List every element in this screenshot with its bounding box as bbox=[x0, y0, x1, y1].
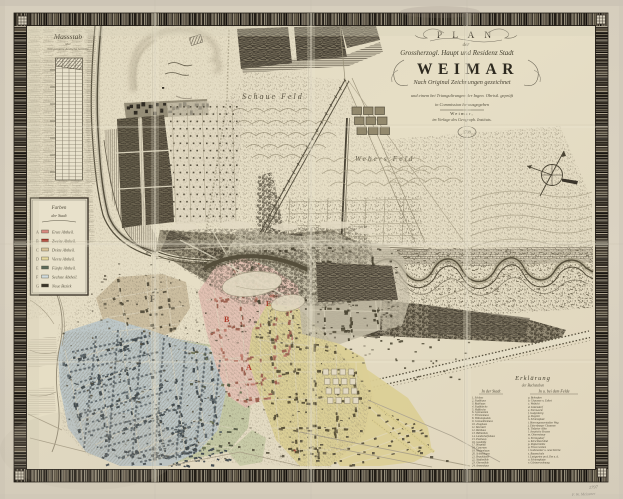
svg-text:Sechste Abtheil.: Sechste Abtheil. bbox=[52, 274, 77, 279]
svg-text:der Buchstaben: der Buchstaben bbox=[522, 384, 545, 388]
svg-text:Fünfte Abtheil.: Fünfte Abtheil. bbox=[51, 265, 76, 270]
svg-text:im Verlage des Geograph. Insti: im Verlage des Geograph. Instituts. bbox=[432, 117, 491, 122]
svg-text:und einem bei Triangulirungen: und einem bei Triangulirungen der Ingen.… bbox=[411, 93, 514, 98]
svg-text:24. Armenhaus: 24. Armenhaus bbox=[472, 464, 489, 467]
svg-text:in Commission herausgegeben: in Commission herausgegeben bbox=[435, 102, 490, 107]
svg-text:1797: 1797 bbox=[589, 484, 599, 490]
svg-text:v. Gärtnerwohnung: v. Gärtnerwohnung bbox=[528, 462, 550, 465]
svg-text:Neue Bezirk: Neue Bezirk bbox=[51, 283, 72, 288]
svg-text:Farben: Farben bbox=[51, 206, 67, 211]
svg-text:Dritte Abtheil.: Dritte Abtheil. bbox=[51, 247, 75, 252]
svg-text:In der Stadt: In der Stadt bbox=[481, 389, 502, 394]
svg-text:In u. bei dem Felde: In u. bei dem Felde bbox=[538, 389, 570, 394]
svg-text:über: über bbox=[65, 42, 72, 46]
svg-text:500 gemeine deutsche Schritte: 500 gemeine deutsche Schritte bbox=[47, 47, 89, 51]
svg-text:Nach Original Zeichnungen geze: Nach Original Zeichnungen gezeichnet bbox=[412, 79, 510, 86]
svg-text:der Stadt: der Stadt bbox=[51, 213, 67, 218]
svg-text:Erklärung: Erklärung bbox=[514, 375, 551, 382]
svg-text:Vierte Abtheil.: Vierte Abtheil. bbox=[52, 256, 75, 261]
svg-text:Grossherzogl. Haupt und Reside: Grossherzogl. Haupt und Residenz Stadt bbox=[400, 49, 515, 57]
svg-text:Erste Abtheil.: Erste Abtheil. bbox=[51, 229, 74, 234]
